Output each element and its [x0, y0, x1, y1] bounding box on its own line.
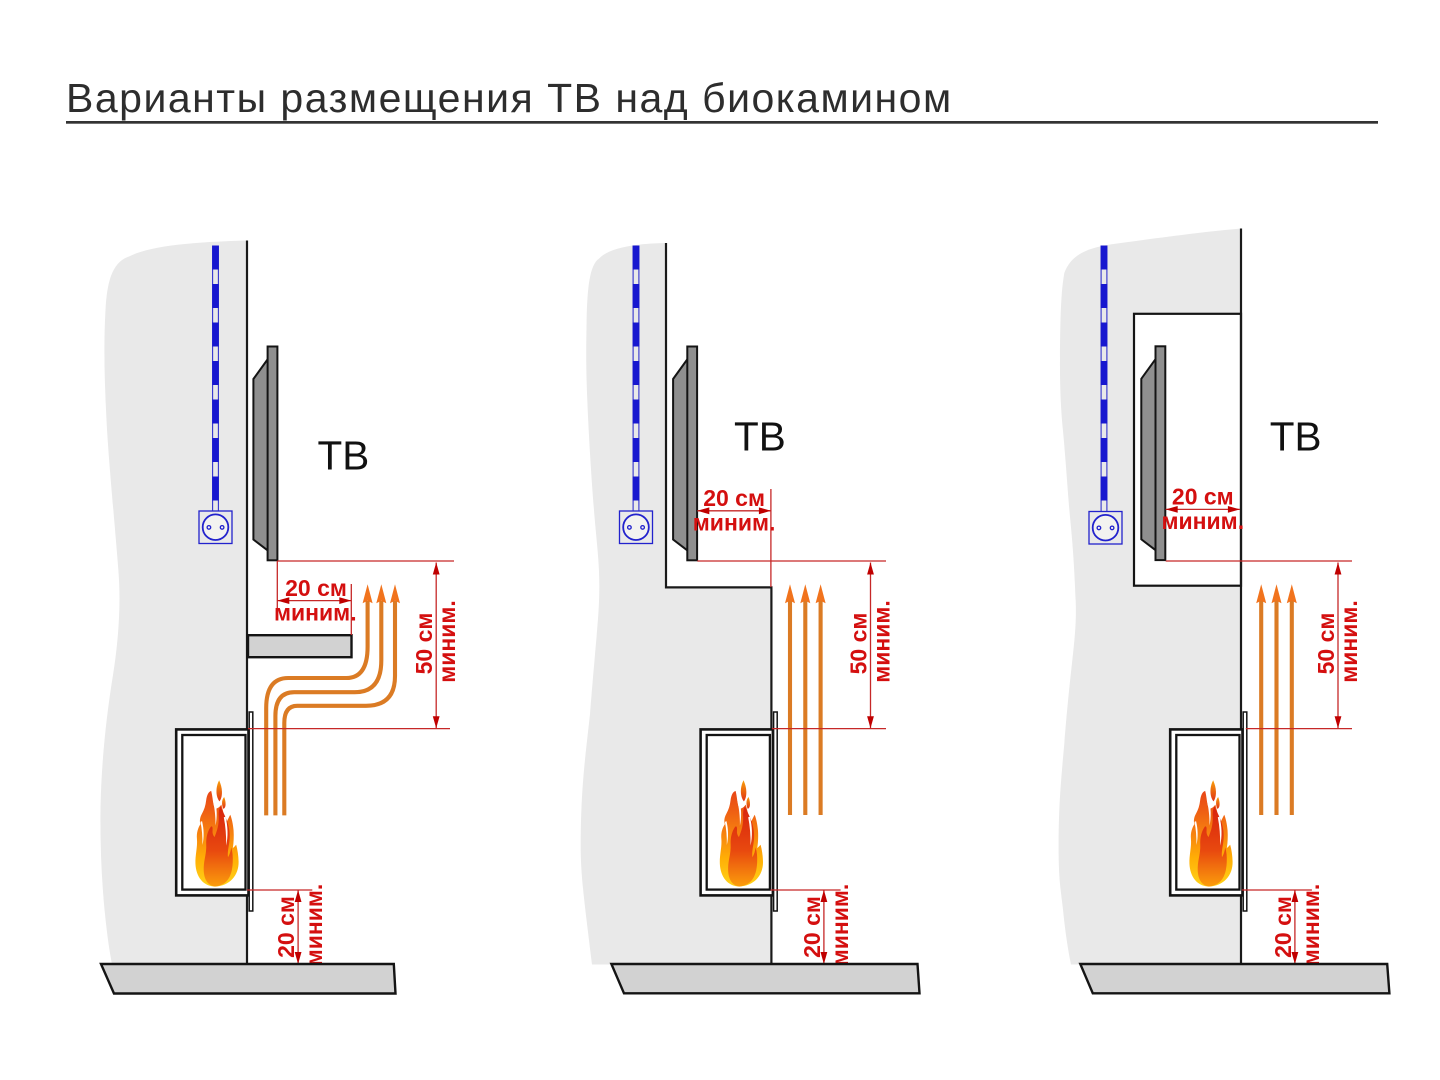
svg-text:20 см: 20 см — [1172, 483, 1234, 509]
svg-text:миним.: миним. — [868, 600, 894, 683]
svg-text:20 см: 20 см — [273, 896, 299, 958]
svg-text:миним.: миним. — [301, 884, 327, 967]
svg-text:ТВ: ТВ — [318, 433, 370, 479]
svg-text:миним.: миним. — [1162, 508, 1245, 534]
svg-text:ТВ: ТВ — [734, 414, 786, 460]
svg-text:Варианты размещения ТВ над био: Варианты размещения ТВ над биокамином — [66, 75, 953, 121]
svg-text:миним.: миним. — [1336, 600, 1362, 683]
svg-text:20 см: 20 см — [799, 896, 825, 958]
svg-text:ТВ: ТВ — [1270, 414, 1322, 460]
svg-text:миним.: миним. — [274, 600, 357, 626]
svg-text:миним.: миним. — [693, 510, 776, 536]
svg-text:миним.: миним. — [1298, 884, 1324, 967]
svg-text:миним.: миним. — [434, 600, 460, 683]
svg-text:миним.: миним. — [827, 884, 853, 967]
svg-text:20 см: 20 см — [1270, 896, 1296, 958]
svg-text:20 см: 20 см — [285, 575, 347, 601]
svg-text:20 см: 20 см — [703, 485, 765, 511]
